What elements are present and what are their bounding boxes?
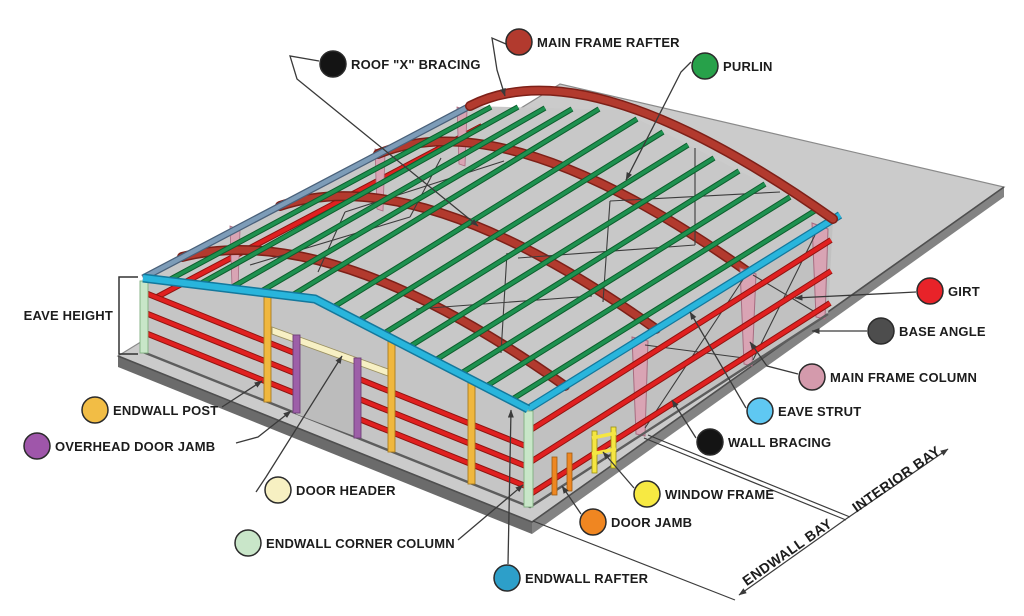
- label-main-frame-column: MAIN FRAME COLUMN: [830, 370, 977, 385]
- endwall-bay-label: ENDWALL BAY: [739, 515, 835, 589]
- legend-circle-base-angle: [868, 318, 894, 344]
- label-eave-strut: EAVE STRUT: [778, 404, 861, 419]
- label-roof-x-bracing: ROOF "X" BRACING: [351, 57, 481, 72]
- legend-circle-eave-strut: [747, 398, 773, 424]
- eave-height-label: EAVE HEIGHT: [24, 308, 113, 323]
- label-door-jamb: DOOR JAMB: [611, 515, 692, 530]
- label-endwall-post: ENDWALL POST: [113, 403, 218, 418]
- endwall-corner-column: [140, 281, 148, 353]
- endwall-corner-column: [524, 411, 533, 507]
- legend-circle-door-header: [265, 477, 291, 503]
- legend-circle-endwall-post: [82, 397, 108, 423]
- label-wall-bracing: WALL BRACING: [728, 435, 831, 450]
- label-door-header: DOOR HEADER: [296, 483, 396, 498]
- endwall-post: [388, 338, 395, 452]
- legend-circle-endwall-rafter: [494, 565, 520, 591]
- interior-bay-label: INTERIOR BAY: [849, 442, 943, 515]
- overhead-door-jamb: [293, 335, 300, 413]
- legend-circle-door-jamb: [580, 509, 606, 535]
- legend-circle-wall-bracing: [697, 429, 723, 455]
- label-girt: GIRT: [948, 284, 980, 299]
- legend-circle-main-frame-rafter: [506, 29, 532, 55]
- label-endwall-corner-column: ENDWALL CORNER COLUMN: [266, 536, 455, 551]
- label-purlin: PURLIN: [723, 59, 773, 74]
- label-base-angle: BASE ANGLE: [899, 324, 986, 339]
- door-jamb: [567, 453, 572, 491]
- label-endwall-rafter: ENDWALL RAFTER: [525, 571, 649, 586]
- eave-height-dimension: EAVE HEIGHT: [24, 277, 138, 354]
- legend-circle-girt: [917, 278, 943, 304]
- leader-main-frame-rafter: [492, 38, 506, 96]
- endwall-post: [468, 381, 475, 484]
- legend-circle-endwall-corner-column: [235, 530, 261, 556]
- label-window-frame: WINDOW FRAME: [665, 487, 774, 502]
- legend-circle-roof-x-bracing: [320, 51, 346, 77]
- door-jamb: [552, 457, 557, 495]
- legend-circle-window-frame: [634, 481, 660, 507]
- endwall-post: [264, 293, 271, 402]
- label-main-frame-rafter: MAIN FRAME RAFTER: [537, 35, 680, 50]
- eave-height-bracket: [119, 277, 138, 354]
- legend-circle-purlin: [692, 53, 718, 79]
- legend-circle-main-frame-column: [799, 364, 825, 390]
- label-overhead-door-jamb: OVERHEAD DOOR JAMB: [55, 439, 215, 454]
- overhead-door-jamb: [354, 358, 361, 438]
- steel-building-diagram: EAVE HEIGHT ENDWALL BAY INTERIOR BAY: [0, 0, 1024, 616]
- legend-circle-overhead-door-jamb: [24, 433, 50, 459]
- dimension-extension-line: [533, 521, 735, 600]
